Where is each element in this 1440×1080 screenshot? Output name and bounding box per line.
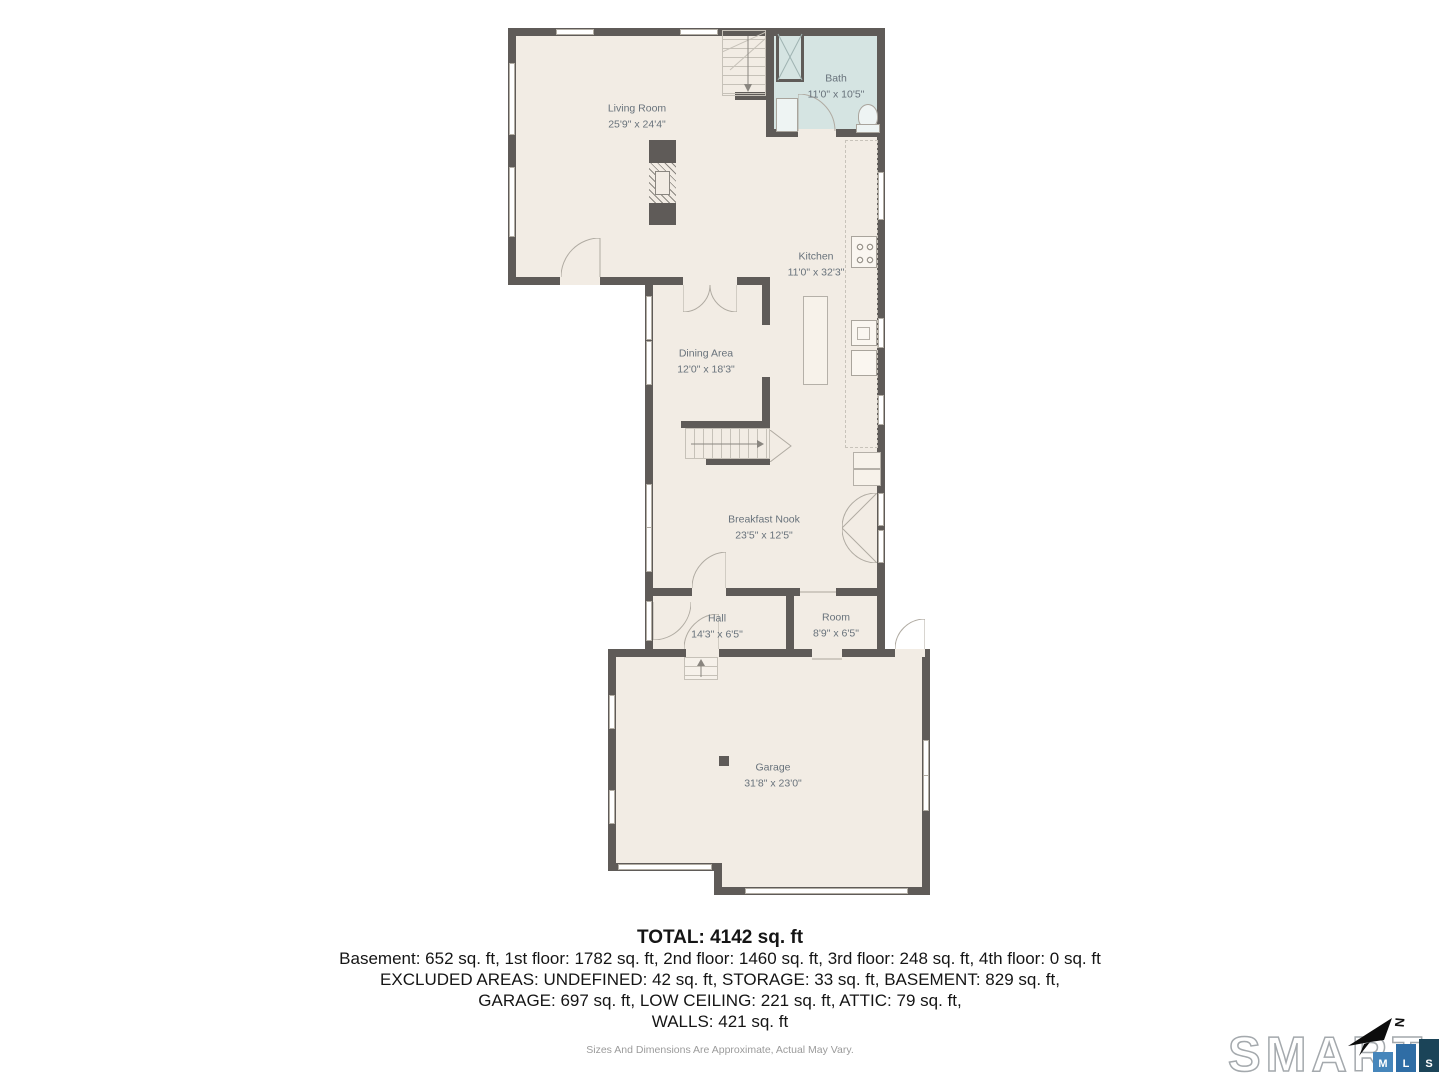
- window: [646, 484, 652, 528]
- mls-square-s: S: [1419, 1039, 1439, 1072]
- wall: [706, 458, 770, 465]
- wall: [608, 649, 616, 871]
- label-kitchen: Kitchen 11'0" x 32'3": [788, 249, 845, 282]
- window: [878, 395, 884, 425]
- window: [556, 29, 594, 35]
- door-opening: [692, 588, 726, 596]
- shower: [776, 32, 804, 82]
- disclaimer: Sizes And Dimensions Are Approximate, Ac…: [0, 1044, 1440, 1056]
- room-dims: 31'8" x 23'0": [744, 776, 802, 792]
- walls-area: WALLS: 421 sq. ft: [0, 1012, 1440, 1032]
- fireplace-box: [655, 171, 670, 195]
- kitchen-counter: [845, 140, 878, 448]
- entry-steps-arrow: [684, 657, 718, 680]
- kitchen-island: [803, 296, 828, 385]
- excluded-areas-1: EXCLUDED AREAS: UNDEFINED: 42 sq. ft, ST…: [0, 970, 1440, 990]
- room-name: Dining Area: [677, 346, 735, 362]
- room-name: Hall: [691, 611, 743, 627]
- room-name: Bath: [808, 71, 865, 87]
- window: [923, 740, 929, 776]
- cased-opening-line: [800, 591, 836, 593]
- label-hall: Hall 14'3" x 6'5": [691, 611, 743, 644]
- room-dims: 23'5" x 12'5": [728, 528, 800, 544]
- toilet-tank: [856, 124, 880, 133]
- window: [609, 790, 615, 824]
- door-opening: [686, 649, 719, 657]
- label-breakfast-nook: Breakfast Nook 23'5" x 12'5": [728, 512, 800, 545]
- dishwasher: [851, 350, 877, 376]
- window: [509, 63, 515, 135]
- window: [878, 172, 884, 220]
- door-leaf: [878, 530, 884, 563]
- door-opening: [895, 649, 925, 657]
- door-arc: [842, 493, 877, 528]
- wall: [645, 588, 885, 596]
- stove: [851, 236, 877, 268]
- nook-counter: [853, 469, 881, 486]
- kitchen-sink: [851, 320, 877, 346]
- label-living-room: Living Room 25'9" x 24'4": [608, 101, 666, 134]
- window: [680, 29, 718, 35]
- door-arc: [683, 285, 710, 312]
- room-garage-lower: [722, 863, 922, 887]
- wall: [681, 421, 770, 428]
- label-dining-area: Dining Area 12'0" x 18'3": [677, 346, 735, 379]
- wall: [877, 588, 885, 655]
- label-garage: Garage 31'8" x 23'0": [744, 760, 802, 793]
- north-label: N: [1392, 1017, 1408, 1028]
- room-dims: 12'0" x 18'3": [677, 362, 735, 378]
- window: [509, 167, 515, 237]
- door-arc: [561, 238, 601, 278]
- room-dims: 14'3" x 6'5": [691, 627, 743, 643]
- window: [646, 296, 652, 340]
- label-room: Room 8'9" x 6'5": [813, 610, 859, 643]
- wall: [766, 28, 774, 137]
- door-opening: [683, 277, 737, 285]
- window: [923, 775, 929, 811]
- room-name: Kitchen: [788, 249, 845, 265]
- window: [646, 341, 652, 385]
- stairs-lower-arrow: [685, 428, 770, 459]
- floor-plan-canvas: Living Room 25'9" x 24'4" Bath 11'0" x 1…: [0, 0, 1440, 1080]
- stairs-upper-arrow: [722, 30, 766, 96]
- door-opening: [812, 649, 842, 657]
- room-dims: 25'9" x 24'4": [608, 117, 666, 133]
- fireplace-top: [649, 140, 676, 163]
- room-dims: 11'0" x 32'3": [788, 265, 845, 281]
- room-dims: 11'0" x 10'5": [808, 87, 865, 103]
- door-arc: [770, 430, 793, 462]
- total-area: TOTAL: 4142 sq. ft: [0, 927, 1440, 949]
- wall: [762, 285, 770, 325]
- door-arc: [710, 285, 737, 312]
- cased-opening-line: [812, 658, 842, 660]
- garage-door: [618, 864, 712, 870]
- wall: [786, 592, 794, 655]
- bath-sink: [776, 98, 798, 132]
- garage-door: [745, 888, 908, 894]
- fireplace: [649, 140, 676, 225]
- door-opening: [560, 277, 600, 285]
- room-name: Room: [813, 610, 859, 626]
- mls-letter: S: [1425, 1058, 1432, 1070]
- floor-areas: Basement: 652 sq. ft, 1st floor: 1782 sq…: [0, 949, 1440, 969]
- nook-counter: [853, 452, 881, 469]
- door-leaf: [878, 493, 884, 526]
- sink-basin: [857, 327, 870, 340]
- wall: [608, 649, 930, 657]
- room-name: Living Room: [608, 101, 666, 117]
- garage-post: [719, 756, 729, 766]
- room-name: Breakfast Nook: [728, 512, 800, 528]
- door-arc: [895, 619, 925, 649]
- door-leaf: [646, 601, 652, 641]
- window: [646, 527, 652, 572]
- window: [878, 318, 884, 348]
- window: [609, 695, 615, 729]
- room-dims: 8'9" x 6'5": [813, 626, 859, 642]
- fireplace-bottom: [649, 203, 676, 225]
- excluded-areas-2: GARAGE: 697 sq. ft, LOW CEILING: 221 sq.…: [0, 991, 1440, 1011]
- room-name: Garage: [744, 760, 802, 776]
- label-bath: Bath 11'0" x 10'5": [808, 71, 865, 104]
- door-arc: [842, 528, 877, 563]
- door-arc: [692, 552, 726, 588]
